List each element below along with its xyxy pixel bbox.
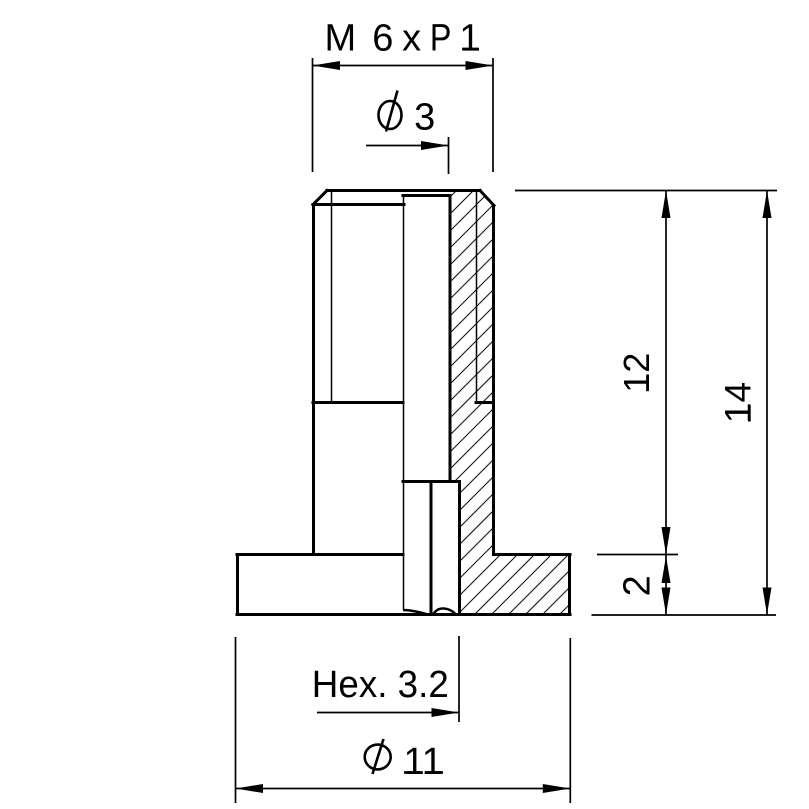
- svg-text:Hex. 3.2: Hex. 3.2: [312, 664, 449, 706]
- svg-text:11: 11: [403, 741, 442, 783]
- svg-text:14: 14: [718, 382, 759, 423]
- svg-text:1: 1: [459, 18, 480, 60]
- svg-text:6: 6: [372, 18, 393, 60]
- svg-text:12: 12: [616, 353, 657, 393]
- svg-text:M: M: [324, 18, 356, 60]
- svg-text:P: P: [430, 17, 452, 59]
- svg-text:3: 3: [414, 97, 435, 139]
- svg-text:2: 2: [617, 575, 659, 596]
- svg-text:x: x: [402, 18, 421, 60]
